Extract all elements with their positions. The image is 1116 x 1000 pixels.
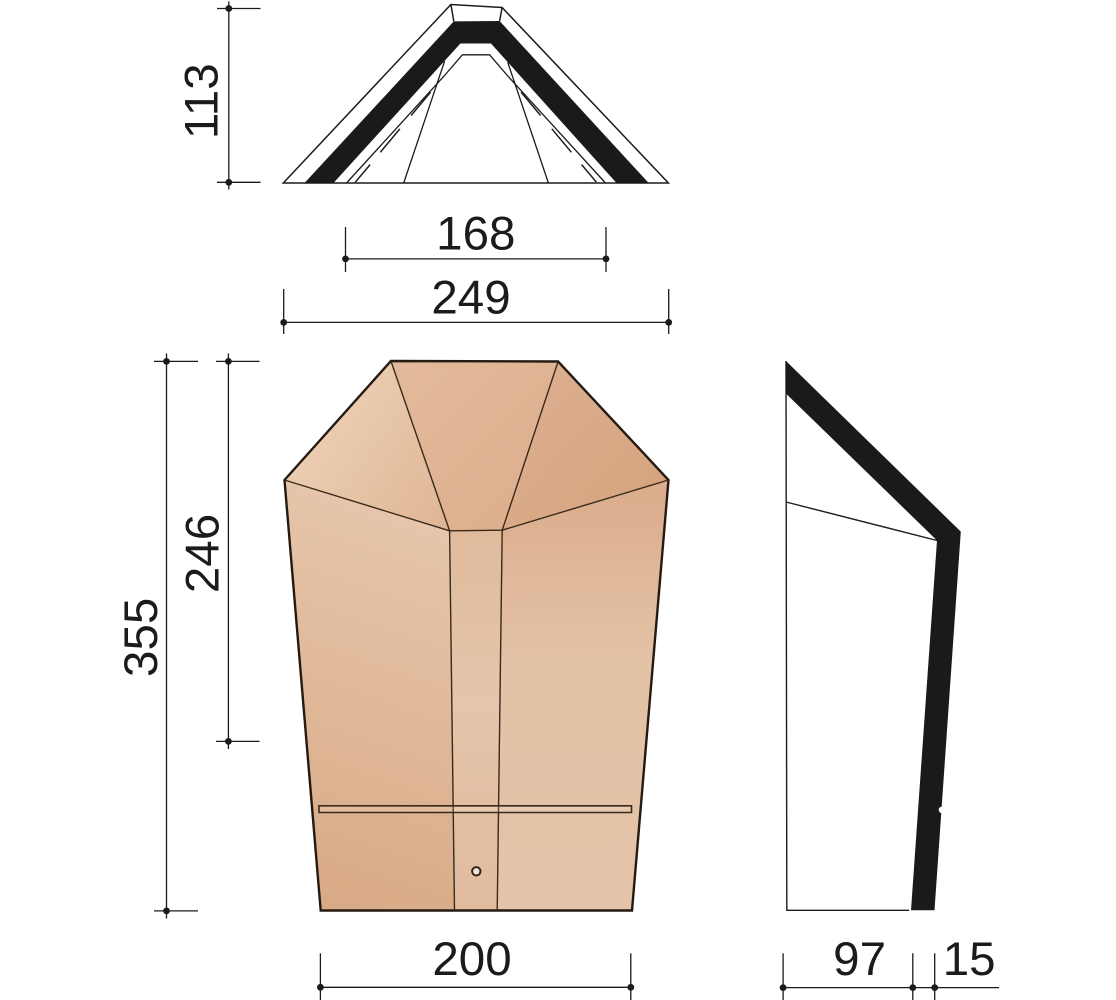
svg-text:355: 355: [115, 598, 168, 677]
svg-text:113: 113: [176, 63, 229, 139]
svg-text:200: 200: [432, 933, 511, 986]
svg-text:168: 168: [436, 208, 515, 261]
svg-text:249: 249: [431, 271, 510, 324]
svg-text:246: 246: [177, 514, 230, 593]
svg-text:15: 15: [943, 933, 996, 986]
svg-text:97: 97: [833, 933, 886, 986]
